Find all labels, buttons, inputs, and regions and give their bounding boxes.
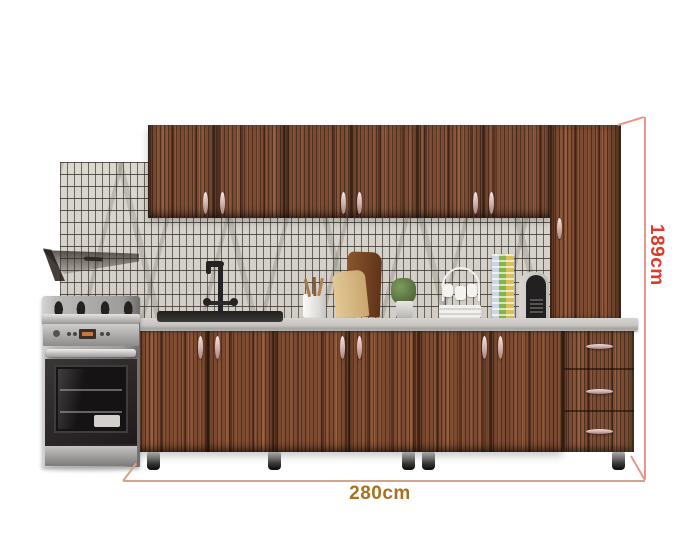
door-handle [220, 192, 225, 214]
stove-knob [100, 332, 104, 336]
base-cabinets [137, 331, 562, 452]
sink [157, 311, 283, 322]
height-dimension-line [644, 117, 646, 479]
drawer-seam [564, 410, 634, 412]
drawer-handle [586, 429, 613, 434]
door-handle [203, 192, 208, 214]
door-handle [473, 192, 478, 214]
cabinet-leg [147, 452, 160, 470]
stove-display-digits [82, 332, 93, 336]
oven-window-glare [58, 369, 88, 429]
stove-control-panel [43, 324, 139, 346]
width-dimension-line [123, 480, 645, 482]
stove-knob [67, 332, 71, 336]
stove-display [79, 329, 96, 339]
wall-cabinets [148, 125, 550, 218]
door-handle [482, 336, 487, 359]
door-handle [357, 192, 362, 214]
capsule-rack [492, 254, 514, 318]
range-hood-icon [43, 245, 140, 282]
faucet-knob [230, 298, 238, 306]
cabinet-leg [612, 452, 625, 470]
tall-cabinet [550, 125, 621, 320]
coffee-machine [519, 272, 549, 322]
gas-range-oven [42, 296, 140, 467]
faucet-spout-drop [206, 261, 211, 274]
drawer-handle [586, 389, 613, 394]
stove-top-edge [42, 314, 140, 324]
oven-door [45, 359, 137, 444]
door-handle [341, 192, 346, 214]
drawer-handle [586, 344, 613, 349]
height-dimension-label: 189cm [645, 224, 667, 286]
door-handle [340, 336, 345, 359]
utensil-holder [303, 294, 326, 318]
mug [455, 286, 466, 300]
drawer-unit [562, 331, 634, 452]
cabinet-leg [402, 452, 415, 470]
oven-window [54, 365, 128, 433]
kitchen-product-image: 280cm 189cm [0, 0, 700, 560]
stove-bottom-drawer [45, 444, 137, 466]
faucet-knob [203, 298, 211, 306]
plant-pot [396, 301, 413, 318]
door-handle [198, 336, 203, 359]
width-dimension-label: 280cm [340, 483, 420, 505]
door-handle [357, 336, 362, 359]
door-handle [215, 336, 220, 359]
mug-rack [439, 267, 481, 318]
height-dimension-connector-top [618, 116, 644, 126]
mug [443, 284, 453, 297]
cabinet-leg [268, 452, 281, 470]
wooden-spoon [313, 277, 317, 296]
cutting-board-light [332, 269, 370, 319]
mug [467, 284, 477, 297]
oven-tray [94, 415, 120, 427]
stove-knob [106, 332, 110, 336]
base-cabinet-door [418, 331, 492, 452]
coffee-machine-grille [530, 299, 543, 314]
stove-dial [53, 330, 60, 337]
door-handle [498, 336, 503, 359]
door-handle [557, 218, 562, 239]
base-cabinet-door [272, 331, 350, 452]
cabinet-leg [422, 452, 435, 470]
oven-handle [46, 349, 136, 357]
stove-knob [73, 332, 77, 336]
drawer-seam [564, 368, 634, 370]
door-handle [489, 192, 494, 214]
mug-rack-base [439, 305, 481, 318]
